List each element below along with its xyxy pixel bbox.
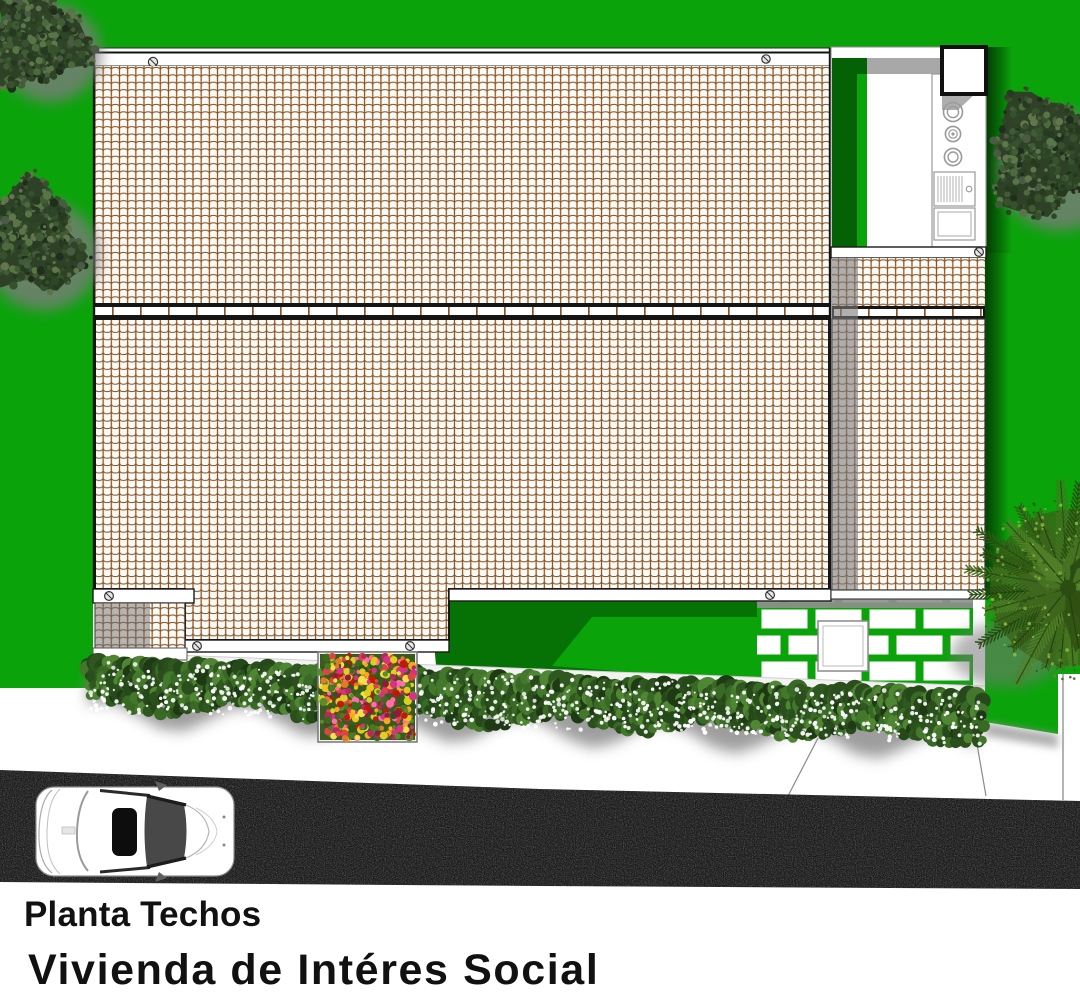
svg-text:Planta Techos: Planta Techos — [24, 895, 261, 934]
svg-text:Vivienda de Intéres Social: Vivienda de Intéres Social — [28, 946, 599, 994]
